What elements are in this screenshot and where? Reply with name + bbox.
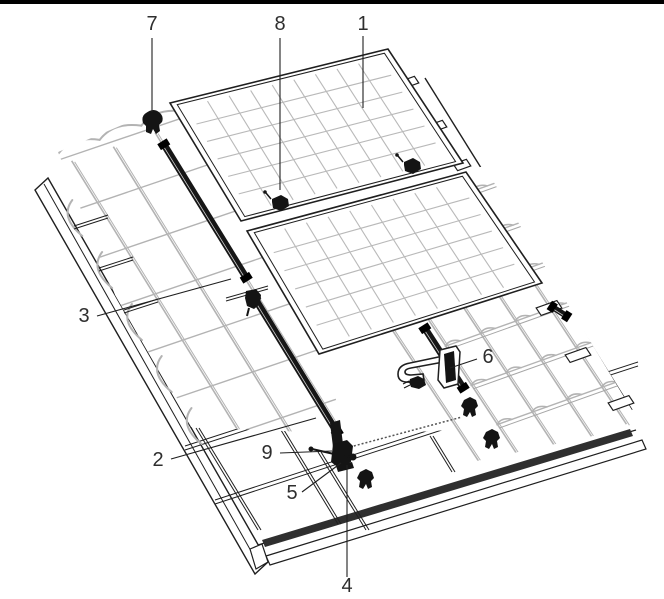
tile-bump [568,200,583,206]
tile-bump [647,123,662,129]
callout-number: 6 [482,346,493,368]
tile-bump [636,369,651,375]
callout-number: 2 [152,449,163,471]
tile-bump [481,134,496,140]
callout-number: 7 [146,13,157,35]
rafter-line [430,436,452,472]
tile-bump [533,212,548,218]
callout-number: 9 [261,442,272,464]
eave-batten-strip [262,429,633,547]
mid-clamp-bolt-head [263,190,267,194]
fascia-board [266,440,646,565]
tile-bump [620,278,635,284]
tile-column-line [617,79,664,363]
tile-bump [551,109,566,115]
tile-bump [656,71,664,77]
tile-column-line [582,92,664,376]
callout-number: 5 [286,482,297,504]
tile-bump [585,291,600,297]
bolt-head [350,454,357,461]
callout-number: 1 [357,13,368,35]
batten-clamp [357,469,374,489]
hook-bolt [447,372,452,377]
tile-column-line [614,78,664,362]
mid-clamp-bolt-head [395,153,399,157]
tile-bump [621,84,636,90]
hook-bolt [447,358,452,363]
tile-bump [638,175,653,181]
tile-bump [559,251,574,257]
top-border [0,0,664,4]
tile-bump [611,330,626,336]
tile-column-line [649,66,664,350]
callout-5: 5 [286,463,341,504]
tile-column-line [579,91,664,375]
callout-7: 7 [146,13,157,112]
diagram-canvas: 7 8 1 3 2 9 5 4 [0,0,664,599]
tile-bump [645,317,660,323]
callout-number: 3 [78,305,89,327]
tile-bump [654,266,664,272]
tile-bump [603,187,618,193]
tile-bump [542,160,557,166]
tile-bump [586,96,601,102]
rafter-line [433,436,455,472]
tile-bump [516,121,531,127]
callout-number: 8 [274,13,285,35]
tile-bump [577,148,592,154]
callout-number: 4 [341,575,352,597]
leader-line [302,463,341,492]
tile-bump [594,239,609,245]
screw-head [309,447,314,452]
tile-bump [507,173,522,179]
installation-diagram: 7 8 1 3 2 9 5 4 [0,0,664,599]
tile-column-line [652,67,664,351]
tile-bump [612,136,627,142]
tile-bump [629,226,644,232]
batten-clamp-body [357,469,374,489]
